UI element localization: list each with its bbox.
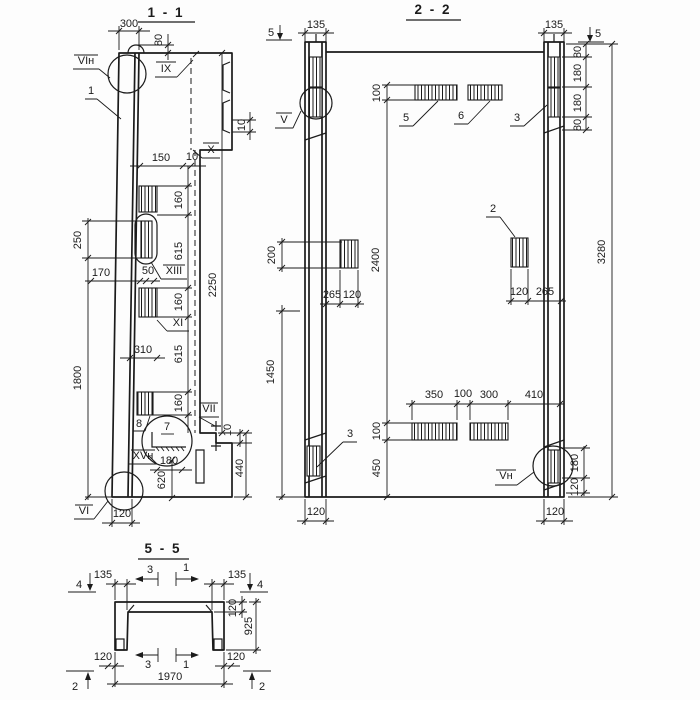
dim-120-bottom-label: 120 xyxy=(113,508,131,520)
dim-160a-label: 160 xyxy=(173,191,185,209)
s22-bar-5 xyxy=(415,85,457,100)
s55-dim-120bl-label: 120 xyxy=(94,651,112,663)
s22-dim-100v-label: 100 xyxy=(371,422,383,440)
s22-label-pos3r: 3 xyxy=(514,112,520,124)
section-1-1-title: 1 - 1 xyxy=(147,5,184,20)
s22-dim-80b-label: 80 xyxy=(572,119,584,131)
dim-1800-label: 1800 xyxy=(72,366,84,390)
s22-label-vn: Vн xyxy=(499,470,512,482)
s22-dim-120c-label: 120 xyxy=(569,478,581,496)
s22-label-v-lines xyxy=(275,111,301,128)
s22-cut5-right-label: 5 xyxy=(595,28,601,40)
s22-label-v: V xyxy=(280,114,288,126)
s22-left-rib-plate-top2 xyxy=(309,88,322,117)
s22-dim-135l-label: 135 xyxy=(307,19,325,31)
label-pos8: 8 xyxy=(136,418,142,430)
s22-mid-plate-right xyxy=(511,238,528,267)
s55-arrow-1-bottom-label: 1 xyxy=(183,659,189,671)
technical-drawing: 1 - 1 300 80 10 150 10 160 615 xyxy=(0,0,700,700)
s22-dim-135r-label: 135 xyxy=(545,19,563,31)
dim-250-label: 250 xyxy=(72,231,84,249)
s55-cut2-right-arrowhead xyxy=(249,672,255,680)
s55-cut4-left-arrowhead xyxy=(87,584,93,591)
s55-dim-135l-label: 135 xyxy=(94,569,112,581)
s55-cut2-right-mark xyxy=(243,671,271,689)
dim-10-step-label: 10 xyxy=(222,424,234,436)
dim-10-notch-label: 10 xyxy=(236,119,248,131)
s22-bar-bottom-left xyxy=(412,423,457,440)
dim-80-label: 80 xyxy=(153,34,165,46)
label-xi: XI xyxy=(173,317,183,329)
s22-dim-100b-label: 100 xyxy=(454,388,472,400)
dim-2250-label: 2250 xyxy=(207,273,219,297)
s22-cut5-right-arrowhead xyxy=(587,35,593,42)
s11-hidden-edges xyxy=(191,58,195,433)
s22-dim-265r-label: 265 xyxy=(536,286,554,298)
s22-label-pos5: 5 xyxy=(403,112,409,124)
dim-150-label: 150 xyxy=(152,152,170,164)
s22-left-rib-plate-top1 xyxy=(309,57,322,87)
s11-detail-circle-top xyxy=(108,55,146,93)
s55-cut2-left-arrowhead xyxy=(85,672,91,680)
label-vi-bottom: VI xyxy=(79,505,89,517)
s22-dim-120bl-label: 120 xyxy=(307,506,325,518)
s22-dim-350-label: 350 xyxy=(425,389,443,401)
s55-dim-135-left xyxy=(106,579,136,610)
section-2-2: 2 - 2 5 5 135 135 80 180 180 80 xyxy=(265,2,618,525)
s22-right-rib-plate-bottom xyxy=(548,450,560,483)
dim-620-label: 620 xyxy=(156,471,168,489)
label-x: X xyxy=(207,144,215,156)
s22-right-rib-plate-top2 xyxy=(548,88,560,117)
s22-cut5-left-arrowhead xyxy=(277,33,283,40)
s11-edge-notches xyxy=(223,62,230,133)
s55-arrow-3-bottom-label: 3 xyxy=(145,659,151,671)
s11-embed-plate-a xyxy=(139,186,157,212)
s22-dim-450-label: 450 xyxy=(371,459,383,477)
s22-label-pos2: 2 xyxy=(490,203,496,215)
s22-label-pos3l: 3 xyxy=(347,428,353,440)
s22-dim-100top-label: 100 xyxy=(371,84,383,102)
s22-cut5-left-label: 5 xyxy=(268,27,274,39)
s55-cut2-right-label: 2 xyxy=(259,681,265,693)
dim-440-label: 440 xyxy=(234,459,246,477)
s55-dim-120t-label: 120 xyxy=(227,599,239,617)
s55-channel-outline xyxy=(115,602,224,650)
s55-arrow-1-bottom-head xyxy=(191,652,199,658)
s55-arrow-1-top-label: 1 xyxy=(183,562,189,574)
label-xiii: XIII xyxy=(166,265,183,277)
s11-capsule-plate xyxy=(141,221,152,258)
s55-cut4-right-label: 4 xyxy=(257,579,263,591)
s22-dim-1450-label: 1450 xyxy=(265,360,277,384)
s22-right-rib-plate-top1 xyxy=(548,57,560,87)
s55-cut2-left-label: 2 xyxy=(72,681,78,693)
s22-dim-265l-label: 265 xyxy=(323,289,341,301)
label-xv: XVн xyxy=(133,450,154,462)
s55-cut4-left-label: 4 xyxy=(76,579,82,591)
s55-dim-135r-label: 135 xyxy=(228,569,246,581)
dim-300-label: 300 xyxy=(120,18,138,30)
s22-mid-plate-left xyxy=(340,240,358,268)
dim-50-label: 50 xyxy=(142,265,154,277)
label-pos1-leader xyxy=(85,99,121,119)
s55-arrow-3-top-label: 3 xyxy=(147,564,153,576)
dim-160b-label: 160 xyxy=(173,293,185,311)
dim-310-label: 310 xyxy=(134,344,152,356)
label-vii: VII xyxy=(202,403,215,415)
dim-180-label: 180 xyxy=(160,455,178,467)
s22-dim-120br-label: 120 xyxy=(546,506,564,518)
s55-left-foot xyxy=(116,639,124,650)
dim-615a-label: 615 xyxy=(173,242,185,260)
s22-dim-2400-label: 2400 xyxy=(370,248,382,272)
s22-dim-inner-chain xyxy=(382,82,416,500)
s22-label-pos3l-leader xyxy=(317,442,357,467)
s22-dim-80a-label: 80 xyxy=(572,46,584,58)
s55-cut4-right-arrowhead xyxy=(247,584,253,591)
s22-dim-180a-label: 180 xyxy=(572,64,584,82)
s22-label-pos2-leader xyxy=(486,217,515,237)
s22-dim-bottom-chain xyxy=(406,400,564,420)
label-pos7: 7 xyxy=(164,421,170,433)
s55-dim-1970-label: 1970 xyxy=(158,671,182,683)
s22-left-rib-plate-bottom xyxy=(307,446,320,476)
s22-dim-300-label: 300 xyxy=(480,389,498,401)
s22-dim-180c-label: 180 xyxy=(569,454,581,472)
s11-detail-circle-bottom xyxy=(105,472,143,510)
s55-arrow-3-bottom-head xyxy=(135,652,143,658)
s22-bar-bottom-right xyxy=(470,423,508,440)
section-5-5: 5 - 5 135 135 4 4 3 1 3 1 120 925 120 xyxy=(66,541,271,693)
s22-bar-6 xyxy=(468,85,502,100)
s22-dim-120r-label: 120 xyxy=(510,286,528,298)
dim-170-label: 170 xyxy=(92,267,110,279)
dim-160c-label: 160 xyxy=(173,394,185,412)
section-1-1: 1 - 1 300 80 10 150 10 160 615 xyxy=(72,5,256,527)
s11-lifting-dome xyxy=(128,45,144,53)
s55-arrow-3-top-head xyxy=(135,576,143,582)
section-5-5-title: 5 - 5 xyxy=(144,541,181,556)
section-2-2-title: 2 - 2 xyxy=(414,2,451,17)
dim-615b-label: 615 xyxy=(173,345,185,363)
s11-dim-2250 xyxy=(219,50,225,436)
s22-dim-180b-label: 180 xyxy=(572,94,584,112)
s55-right-foot xyxy=(214,639,222,650)
drawing-sheet: 1 - 1 300 80 10 150 10 160 615 xyxy=(0,0,700,700)
label-vi-top: VIн xyxy=(78,55,94,67)
label-ix: IX xyxy=(161,63,172,75)
s11-embed-plate-c xyxy=(139,288,157,317)
s55-dim-925-label: 925 xyxy=(243,617,255,635)
s22-dim-410-label: 410 xyxy=(525,389,543,401)
s55-dim-120br-label: 120 xyxy=(227,651,245,663)
label-pos1: 1 xyxy=(88,85,94,97)
s55-corner-fillets xyxy=(128,605,212,612)
s55-arrow-1-top-head xyxy=(191,576,199,582)
s22-label-pos6: 6 xyxy=(458,110,464,122)
s11-embed-plate-d xyxy=(137,392,153,415)
s11-bottom-recess xyxy=(196,450,204,483)
s22-dim-3280-label: 3280 xyxy=(596,240,608,264)
s22-dim-120l-label: 120 xyxy=(343,289,361,301)
s22-dim-200-label: 200 xyxy=(266,246,278,264)
